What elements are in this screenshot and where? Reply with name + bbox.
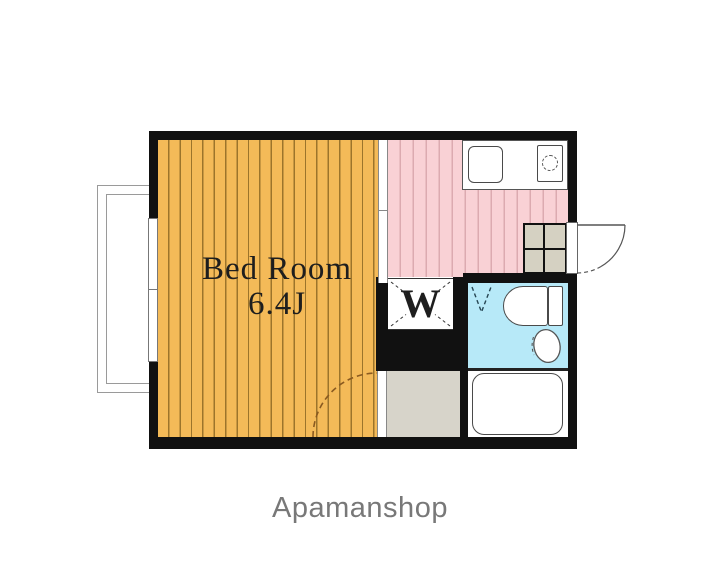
sliding-partition-tick xyxy=(378,210,388,211)
bedroom-name: Bed Room xyxy=(177,252,377,287)
brand-logo: Apamanshop xyxy=(0,492,720,525)
toilet-tank xyxy=(548,286,563,326)
stove-burner-icon xyxy=(542,155,558,171)
bedroom-size: 6.4J xyxy=(177,287,377,322)
wall-right xyxy=(568,131,577,449)
closet-label: W xyxy=(388,282,453,326)
wall-bath-left xyxy=(460,283,468,437)
bathtub xyxy=(472,373,563,435)
balcony-window xyxy=(148,218,158,362)
sliding-partition xyxy=(378,140,388,283)
entrance-door-arc xyxy=(601,225,625,267)
bedroom-door-opening xyxy=(377,371,387,437)
entrance-opening xyxy=(566,222,578,274)
toilet-bowl xyxy=(503,286,548,326)
wall-kitchen-bottom xyxy=(463,273,577,283)
wall-bath-divider xyxy=(468,368,568,371)
floor-plan: W Bed Room 6.4J xyxy=(0,0,720,576)
wall-closet-left xyxy=(376,277,388,330)
wall-center-block xyxy=(376,330,463,371)
wall-bottom xyxy=(149,437,577,449)
wall-top xyxy=(149,131,577,140)
bedroom-label: Bed Room 6.4J xyxy=(177,252,377,322)
entrance-door-arc-dashed xyxy=(577,267,601,274)
room-hallway xyxy=(387,371,462,437)
shoe-cabinet-divider-h xyxy=(523,248,567,250)
balcony-window-tick xyxy=(148,289,158,290)
kitchen-sink xyxy=(468,146,503,183)
